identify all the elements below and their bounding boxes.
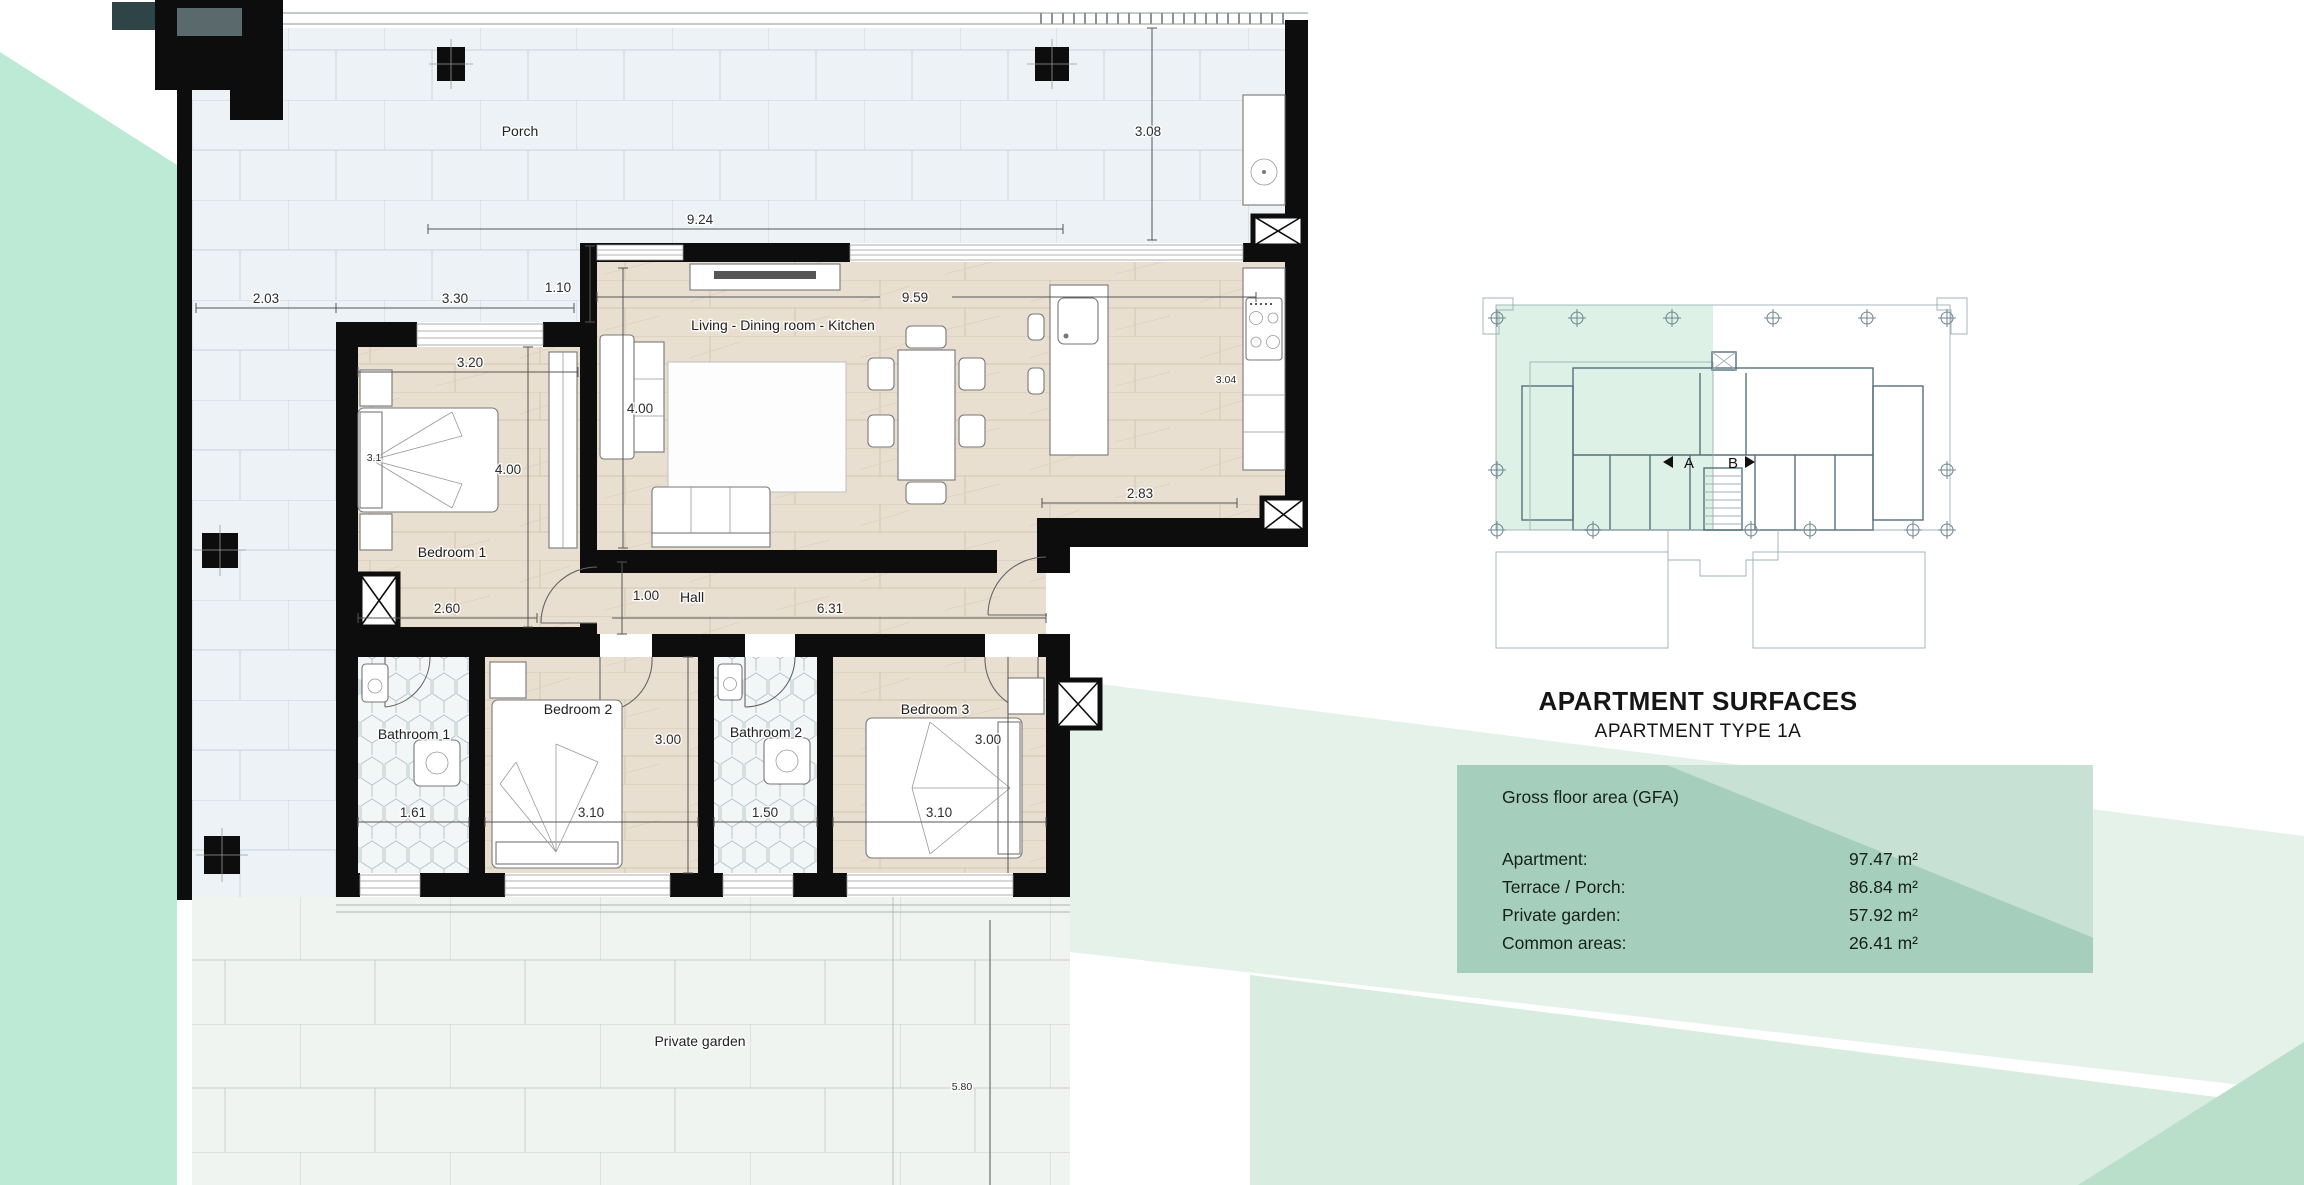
dim-hall-length: 6.31	[817, 601, 843, 616]
surface-row: Terrace / Porch: 86.84 m²	[1502, 873, 1918, 901]
window-bathroom1	[360, 875, 420, 895]
room-label-bedroom1: Bedroom 1	[418, 544, 487, 560]
unit-a-label: A	[1684, 455, 1694, 472]
dim-living-height: 4.00	[627, 401, 653, 416]
room-label-hall: Hall	[680, 589, 704, 605]
dim-bed-width: 3.1	[367, 452, 382, 464]
surface-row: Common areas: 26.41 m²	[1502, 929, 1918, 957]
room-label-living: Living - Dining room - Kitchen	[691, 317, 875, 333]
room-label-bathroom1: Bathroom 1	[378, 726, 451, 742]
dim-hall-left: 2.60	[434, 601, 460, 616]
title-block: APARTMENT SURFACES APARTMENT TYPE 1A	[1448, 686, 1948, 743]
surface-row-value: 86.84 m²	[1849, 873, 1918, 901]
room-label-bedroom3: Bedroom 3	[901, 701, 970, 717]
surface-row-label: Apartment:	[1502, 845, 1588, 873]
shaft	[360, 574, 398, 627]
window-living-left	[597, 245, 683, 260]
surface-row-label: Private garden:	[1502, 901, 1621, 929]
dim-entry-width: 2.83	[1127, 486, 1153, 501]
room-label-garden: Private garden	[654, 1033, 745, 1049]
window-living-right	[850, 245, 1243, 260]
window-bedroom1	[417, 324, 543, 345]
window-bathroom2	[723, 875, 793, 895]
dim-bathroom1-width: 1.61	[400, 805, 426, 820]
unit-b-label: B	[1728, 455, 1738, 472]
dim-living-width: 9.59	[902, 290, 928, 305]
dim-bathroom2-width: 1.50	[752, 805, 778, 820]
gfa-section-label: Gross floor area (GFA)	[1502, 787, 1679, 808]
surface-row-value: 97.47 m²	[1849, 845, 1918, 873]
dim-garden-depth: 5.80	[952, 1081, 973, 1093]
sheet-subtitle: APARTMENT TYPE 1A	[1448, 721, 1948, 743]
surfaces-rows: Apartment: 97.47 m² Terrace / Porch: 86.…	[1502, 845, 1918, 957]
surfaces-panel: Gross floor area (GFA) Apartment: 97.47 …	[1457, 765, 2093, 973]
window-bedroom2	[505, 875, 670, 895]
surface-row: Apartment: 97.47 m²	[1502, 845, 1918, 873]
room-label-bathroom2: Bathroom 2	[730, 724, 803, 740]
floor-plan-canvas: 2.03 3.30 1.10 9.24 3.08 9.59 4.00 3.20 …	[0, 0, 2304, 1185]
dim-bedroom2-width: 3.10	[578, 805, 604, 820]
dim-bedroom1-outer: 3.30	[442, 291, 468, 306]
dim-offset: 1.10	[545, 280, 571, 295]
sheet-title: APARTMENT SURFACES	[1448, 686, 1948, 717]
surface-row-label: Terrace / Porch:	[1502, 873, 1626, 901]
dim-kitchen-side: 3.04	[1216, 374, 1237, 386]
surface-row-value: 26.41 m²	[1849, 929, 1918, 957]
shaft	[1253, 216, 1303, 246]
shaft	[1262, 498, 1305, 531]
dim-bedroom1-height: 4.00	[495, 462, 521, 477]
room-label-porch: Porch	[502, 123, 539, 139]
dim-terrace-width: 2.03	[253, 291, 279, 306]
room-label-bedroom2: Bedroom 2	[544, 701, 613, 717]
plan-sheet: 2.03 3.30 1.10 9.24 3.08 9.59 4.00 3.20 …	[0, 0, 2304, 1185]
shaft	[1056, 680, 1100, 728]
surface-row-label: Common areas:	[1502, 929, 1627, 957]
dim-hall-width: 1.00	[633, 588, 659, 603]
surface-row: Private garden: 57.92 m²	[1502, 901, 1918, 929]
dim-bedroom3-height: 3.00	[975, 732, 1001, 747]
dim-porch-depth: 3.08	[1135, 124, 1161, 139]
dim-porch-width: 9.24	[687, 212, 714, 227]
dim-bedroom1-width: 3.20	[457, 355, 483, 370]
dim-bedroom3-width: 3.10	[926, 805, 952, 820]
surface-row-value: 57.92 m²	[1849, 901, 1918, 929]
window-bedroom3	[847, 875, 1013, 895]
dim-row-height: 3.00	[655, 732, 681, 747]
